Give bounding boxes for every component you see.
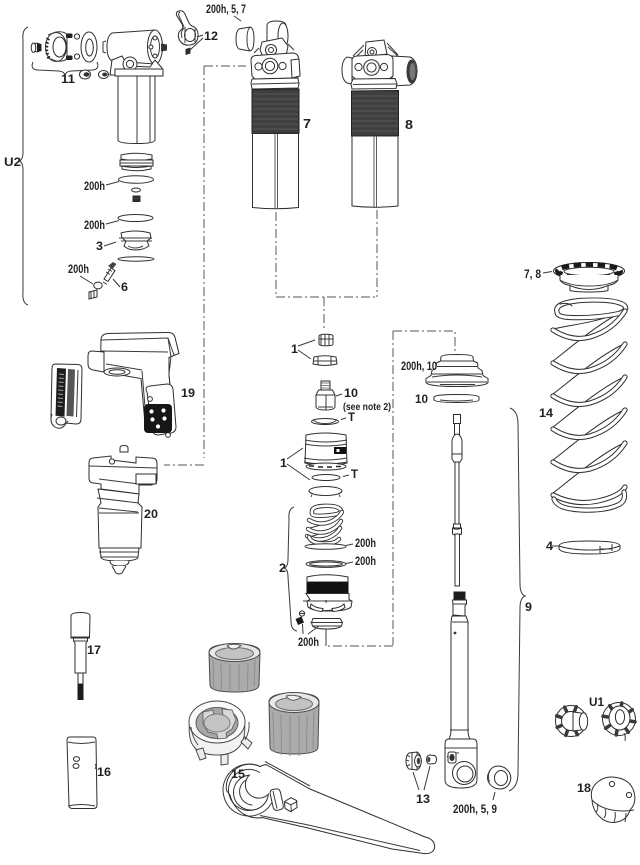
svg-text:10: 10 bbox=[415, 392, 428, 406]
svg-text:10: 10 bbox=[344, 386, 358, 400]
svg-text:6: 6 bbox=[121, 280, 128, 294]
svg-text:200h, 5, 9: 200h, 5, 9 bbox=[453, 804, 497, 816]
svg-text:200h: 200h bbox=[84, 220, 105, 232]
svg-text:20: 20 bbox=[144, 507, 158, 521]
svg-text:200h, 10: 200h, 10 bbox=[401, 361, 437, 373]
svg-text:200h: 200h bbox=[298, 637, 319, 649]
svg-text:7, 8: 7, 8 bbox=[524, 269, 542, 281]
svg-text:200h, 5, 7: 200h, 5, 7 bbox=[206, 4, 246, 16]
svg-text:7: 7 bbox=[303, 117, 311, 131]
svg-text:9: 9 bbox=[525, 600, 532, 614]
svg-text:U2: U2 bbox=[4, 155, 21, 169]
svg-text:1: 1 bbox=[291, 342, 298, 356]
svg-text:16: 16 bbox=[97, 765, 111, 779]
svg-text:T: T bbox=[351, 467, 359, 481]
svg-text:11: 11 bbox=[61, 72, 75, 86]
svg-text:13: 13 bbox=[416, 792, 430, 806]
svg-text:14: 14 bbox=[539, 406, 553, 420]
svg-text:200h: 200h bbox=[84, 181, 105, 193]
svg-text:15: 15 bbox=[231, 767, 245, 781]
svg-text:200h: 200h bbox=[355, 556, 376, 568]
svg-text:19: 19 bbox=[181, 386, 195, 400]
svg-text:U1: U1 bbox=[589, 695, 604, 709]
svg-text:1: 1 bbox=[280, 456, 287, 470]
svg-text:200h: 200h bbox=[68, 264, 89, 276]
svg-text:200h: 200h bbox=[355, 538, 376, 550]
svg-text:18: 18 bbox=[577, 781, 591, 795]
svg-text:8: 8 bbox=[405, 118, 413, 132]
svg-text:17: 17 bbox=[87, 643, 101, 657]
svg-text:2: 2 bbox=[279, 561, 286, 575]
svg-text:12: 12 bbox=[204, 29, 218, 43]
svg-text:T: T bbox=[348, 410, 356, 424]
svg-text:3: 3 bbox=[96, 239, 103, 253]
